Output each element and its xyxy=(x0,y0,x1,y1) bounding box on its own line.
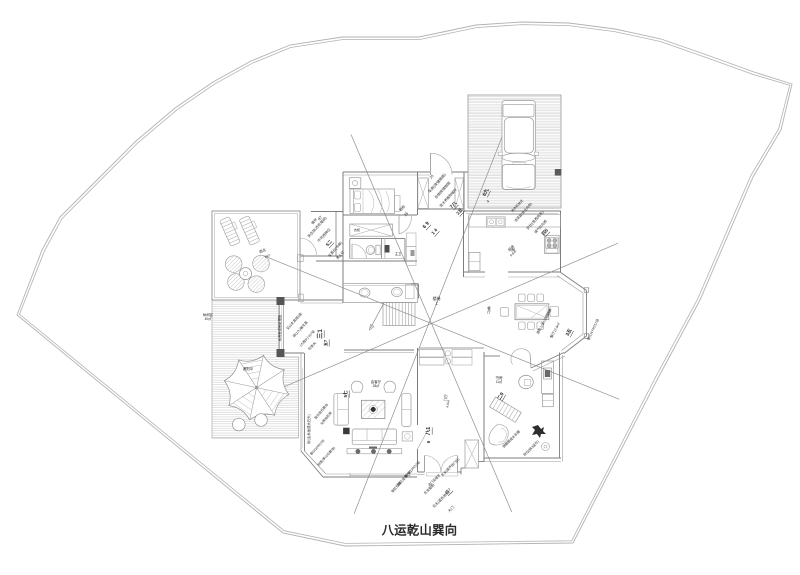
svg-text:水养鱼或鱼缸摆放: 水养鱼或鱼缸摆放 xyxy=(277,314,282,341)
svg-text:28㎡: 28㎡ xyxy=(373,383,381,388)
svg-text:遮阳伞: 遮阳伞 xyxy=(243,366,254,371)
svg-text:11㎡: 11㎡ xyxy=(496,379,503,384)
svg-text:八1: 八1 xyxy=(425,427,432,437)
svg-text:三1: 三1 xyxy=(317,329,324,339)
svg-text:米: 米 xyxy=(511,246,515,252)
svg-text:衣柜: 衣柜 xyxy=(354,227,360,232)
svg-text:40㎡: 40㎡ xyxy=(205,316,213,321)
svg-text:砂(山水画或大石头): 砂(山水画或大石头) xyxy=(306,414,311,443)
svg-text:5七: 5七 xyxy=(342,390,349,398)
svg-text:厅: 厅 xyxy=(487,310,491,315)
svg-text:楼梯: 楼梯 xyxy=(433,296,441,301)
svg-text:八运乾山巽向: 八运乾山巽向 xyxy=(382,523,458,538)
svg-text:主卫: 主卫 xyxy=(395,251,402,256)
svg-text:上: 上 xyxy=(435,301,439,306)
